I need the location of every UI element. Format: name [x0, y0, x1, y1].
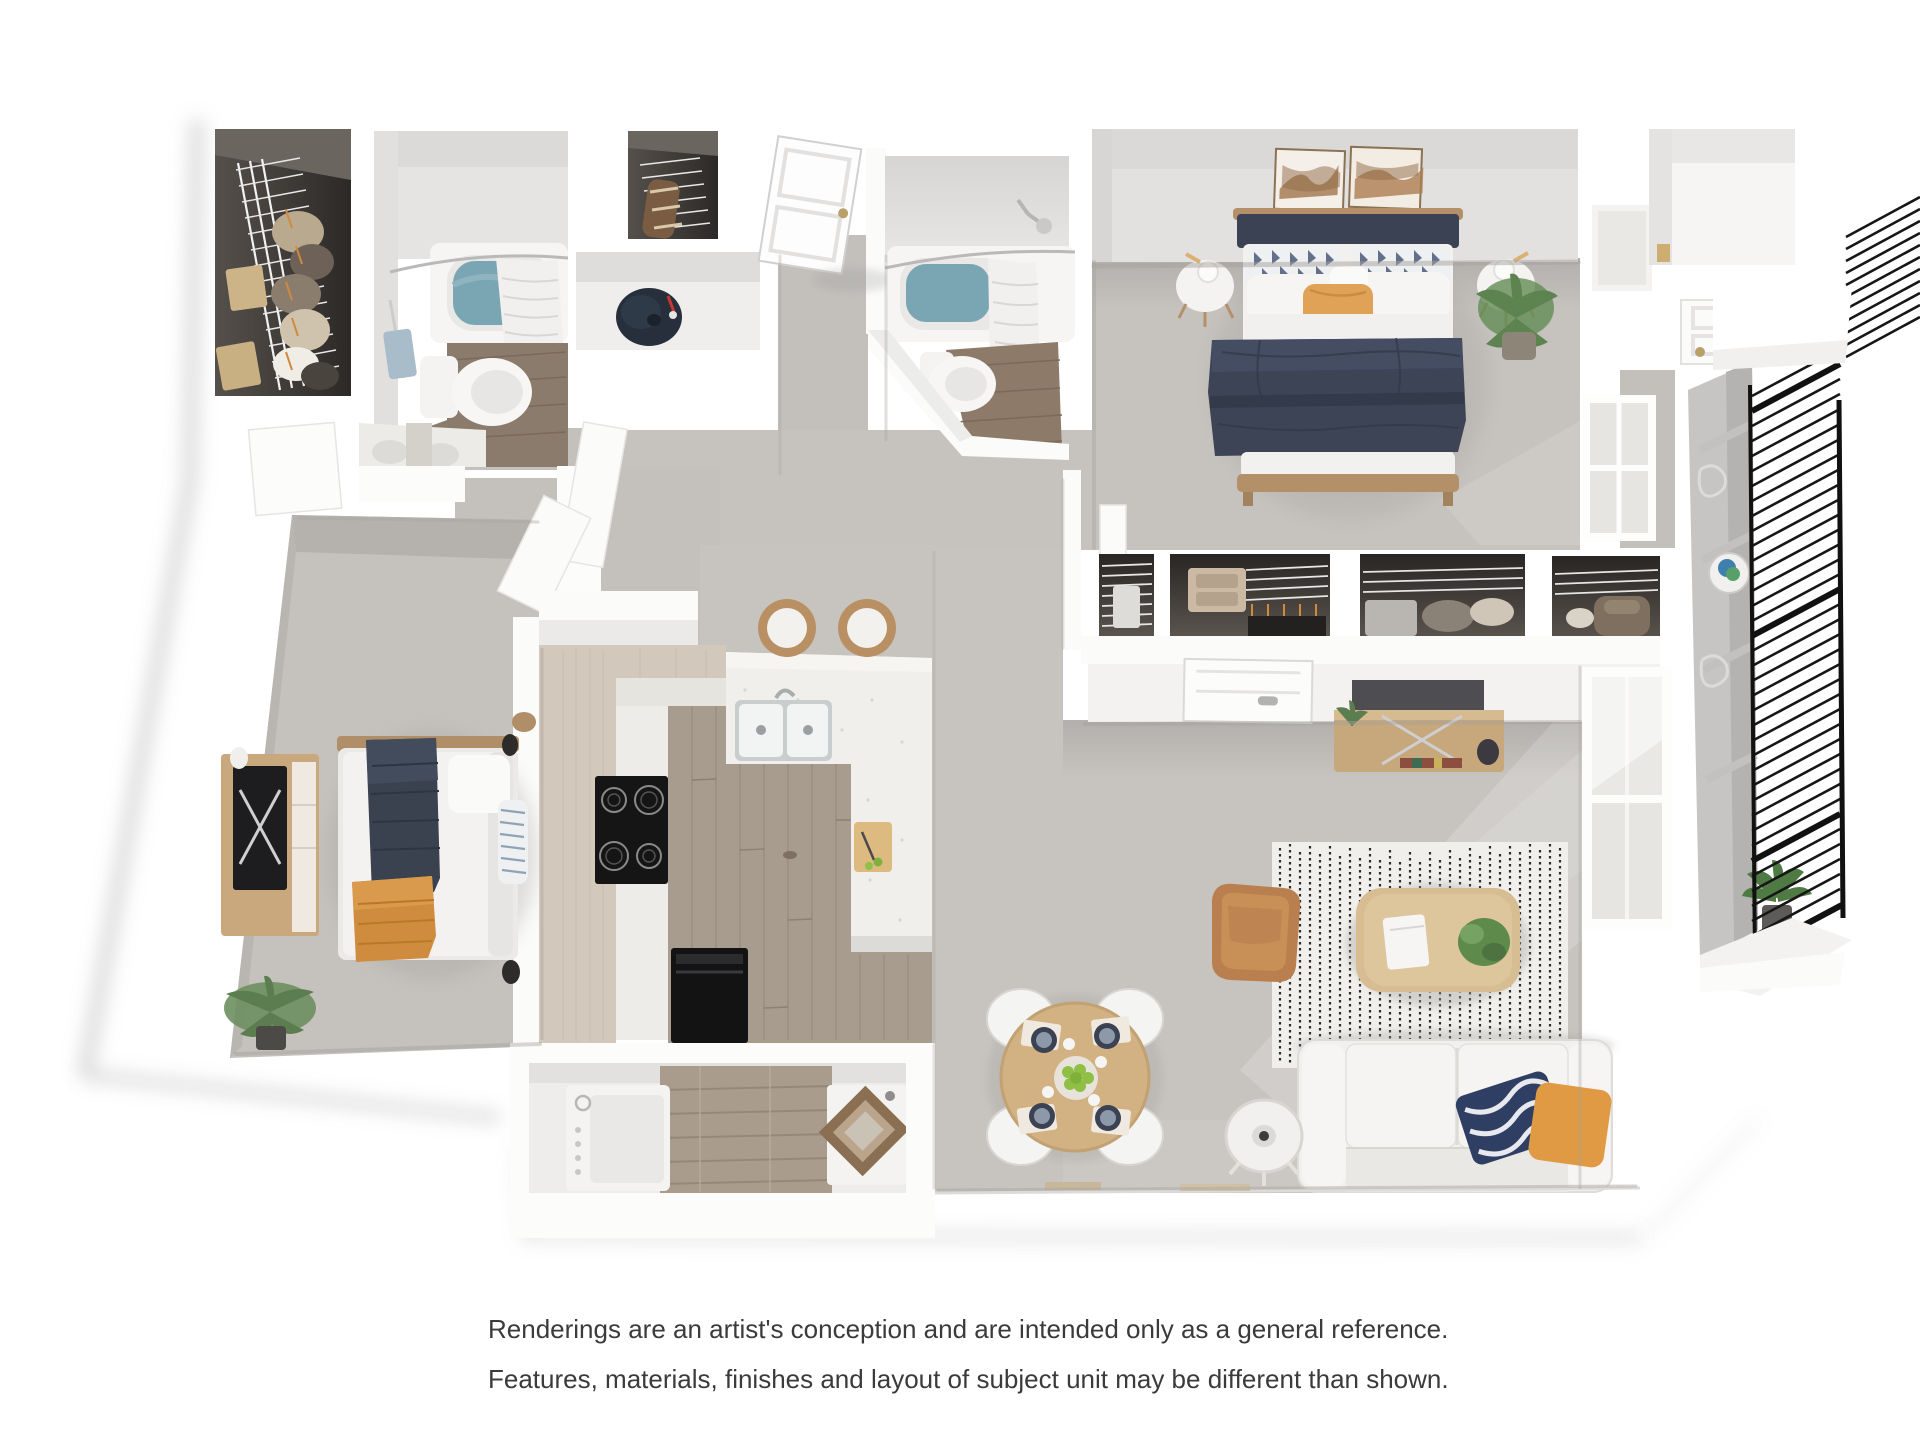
- svg-text:Features, materials, finishes: Features, materials, finishes and layout…: [488, 1364, 1449, 1394]
- svg-text:Renderings are an artist's con: Renderings are an artist's conception an…: [488, 1314, 1448, 1344]
